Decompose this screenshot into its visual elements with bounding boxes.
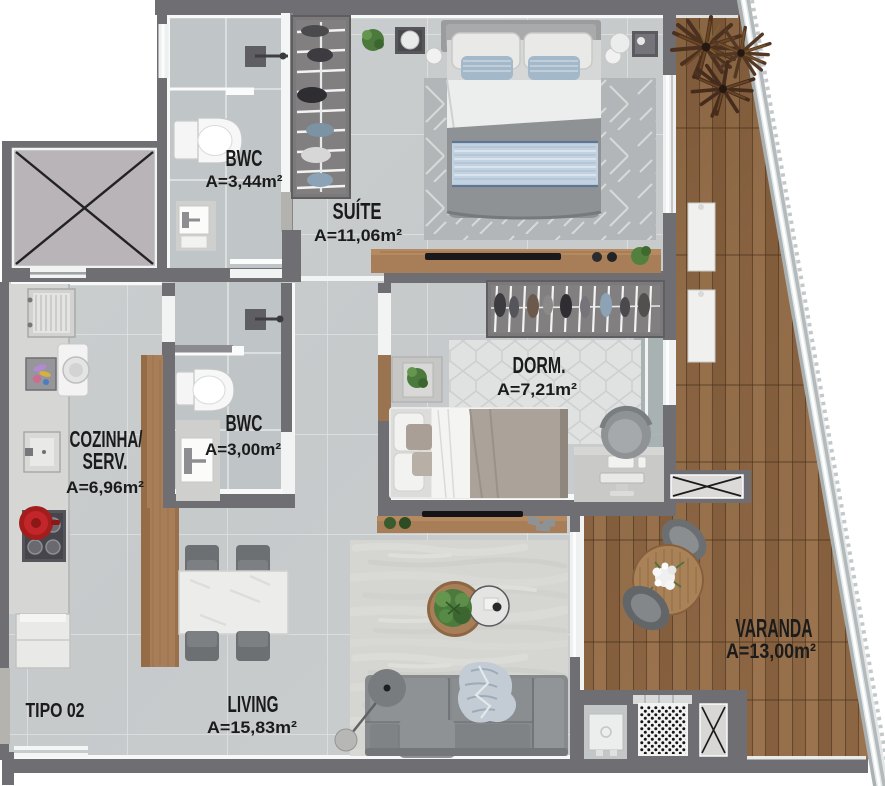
svg-text:TIPO 02: TIPO 02	[26, 700, 85, 722]
svg-text:SERV.: SERV.	[83, 448, 128, 474]
svg-text:A=13,00m²: A=13,00m²	[726, 640, 816, 663]
svg-text:DORM.: DORM.	[513, 352, 566, 378]
svg-text:A=7,21m²: A=7,21m²	[497, 380, 577, 399]
svg-text:LIVING: LIVING	[228, 691, 279, 717]
svg-text:A=3,44m²: A=3,44m²	[206, 172, 283, 191]
svg-text:A=3,00m²: A=3,00m²	[205, 440, 281, 459]
svg-text:BWC: BWC	[226, 145, 263, 171]
svg-text:VARANDA: VARANDA	[736, 613, 813, 643]
svg-text:A=15,83m²: A=15,83m²	[207, 718, 297, 737]
svg-text:A=11,06m²: A=11,06m²	[314, 226, 402, 245]
svg-text:A=6,96m²: A=6,96m²	[66, 478, 144, 497]
svg-text:SUÍTE: SUÍTE	[333, 197, 382, 224]
svg-text:BWC: BWC	[226, 410, 263, 436]
